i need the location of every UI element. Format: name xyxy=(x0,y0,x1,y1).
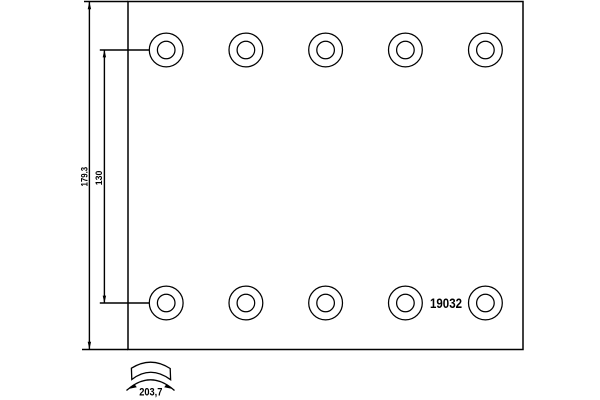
svg-text:130: 130 xyxy=(94,171,105,186)
svg-text:19032: 19032 xyxy=(430,296,462,311)
svg-text:179.3: 179.3 xyxy=(79,167,90,187)
svg-text:203,7: 203,7 xyxy=(139,386,162,398)
